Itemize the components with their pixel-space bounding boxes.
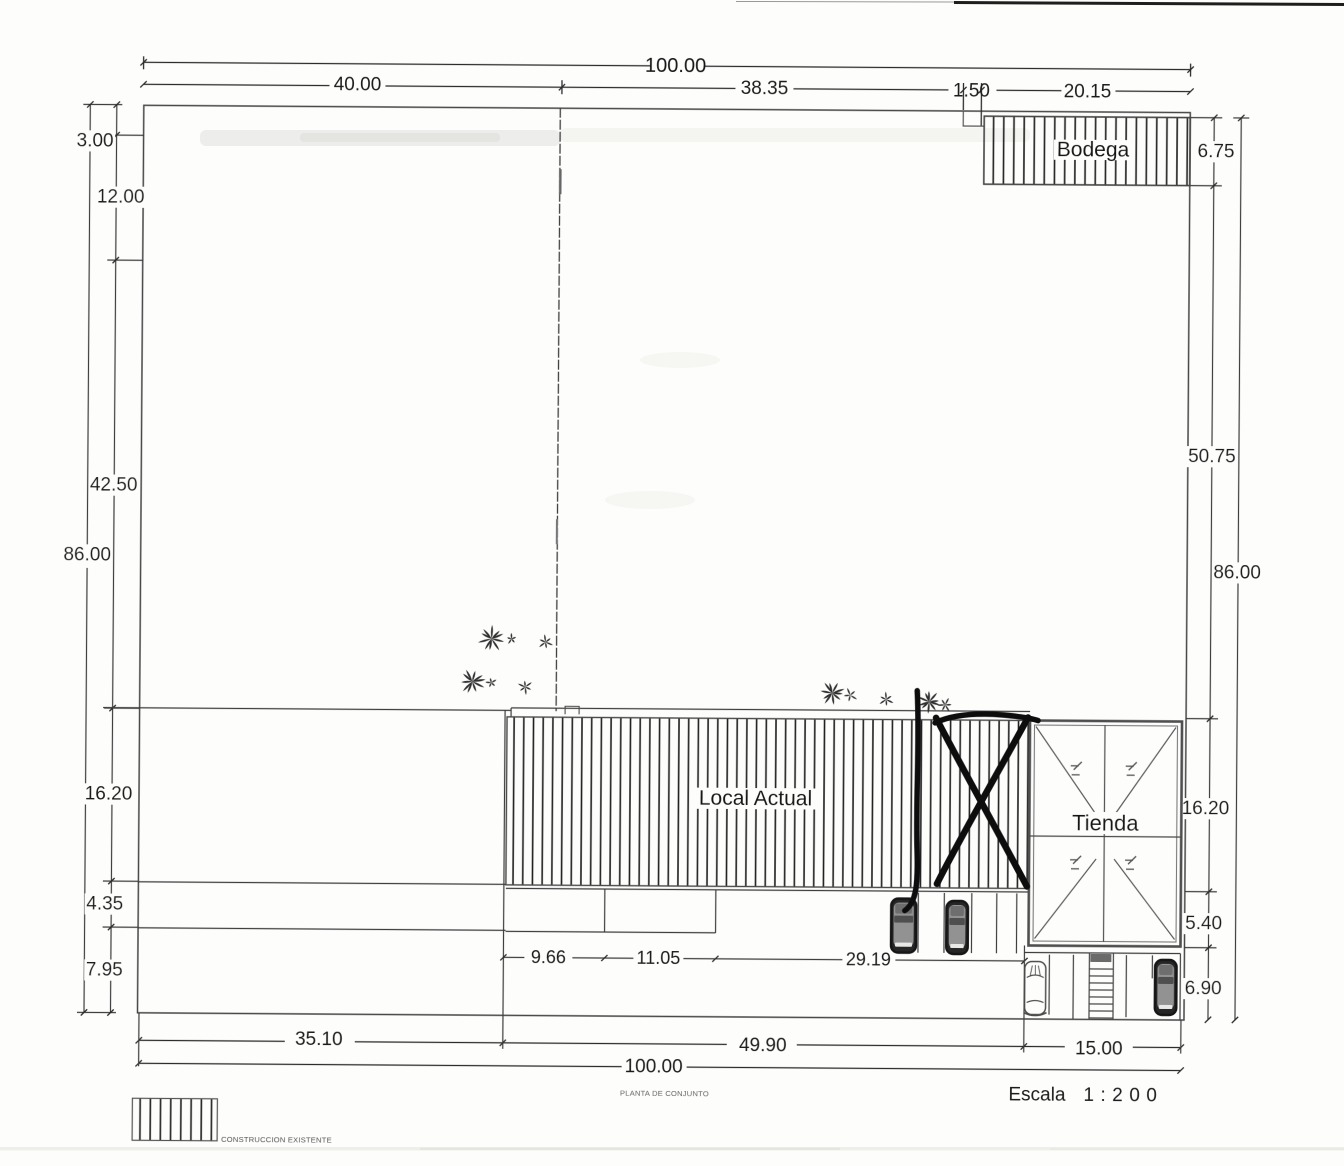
svg-text:50.75: 50.75 (1188, 446, 1236, 467)
svg-text:Escala: Escala (1008, 1084, 1066, 1105)
svg-text:6.90: 6.90 (1185, 978, 1222, 999)
svg-text:Tienda: Tienda (1072, 810, 1139, 835)
svg-text:PLANTA DE CONJUNTO: PLANTA DE CONJUNTO (620, 1089, 709, 1099)
svg-text:12.00: 12.00 (97, 186, 145, 207)
svg-text:5.40: 5.40 (1185, 913, 1222, 934)
svg-text:20.15: 20.15 (1064, 81, 1112, 102)
svg-text:4.35: 4.35 (86, 893, 123, 914)
svg-text:100.00: 100.00 (624, 1056, 682, 1077)
svg-text:86.00: 86.00 (63, 544, 111, 565)
svg-text:16.20: 16.20 (1182, 798, 1230, 819)
svg-text:38.35: 38.35 (741, 78, 789, 99)
svg-text:3.00: 3.00 (77, 130, 114, 151)
svg-text:16.20: 16.20 (85, 783, 133, 804)
svg-text:15.00: 15.00 (1075, 1038, 1123, 1059)
svg-text:1.50: 1.50 (953, 80, 990, 101)
svg-text:6.75: 6.75 (1197, 141, 1234, 162)
svg-text:9.66: 9.66 (531, 947, 566, 967)
svg-text:CONSTRUCCION EXISTENTE: CONSTRUCCION EXISTENTE (221, 1135, 332, 1145)
svg-text:100.00: 100.00 (645, 55, 706, 77)
svg-text:42.50: 42.50 (90, 474, 138, 495)
svg-text:40.00: 40.00 (334, 74, 382, 95)
svg-text:11.05: 11.05 (636, 948, 680, 968)
svg-text:49.90: 49.90 (739, 1035, 787, 1056)
svg-text:29.19: 29.19 (846, 949, 891, 969)
svg-text:86.00: 86.00 (1213, 562, 1261, 583)
svg-text:1 : 2 0 0: 1 : 2 0 0 (1083, 1085, 1157, 1107)
svg-text:Bodega: Bodega (1057, 138, 1130, 162)
svg-text:35.10: 35.10 (295, 1029, 343, 1050)
svg-text:Local Actual: Local Actual (699, 787, 812, 811)
svg-text:7.95: 7.95 (86, 959, 123, 980)
